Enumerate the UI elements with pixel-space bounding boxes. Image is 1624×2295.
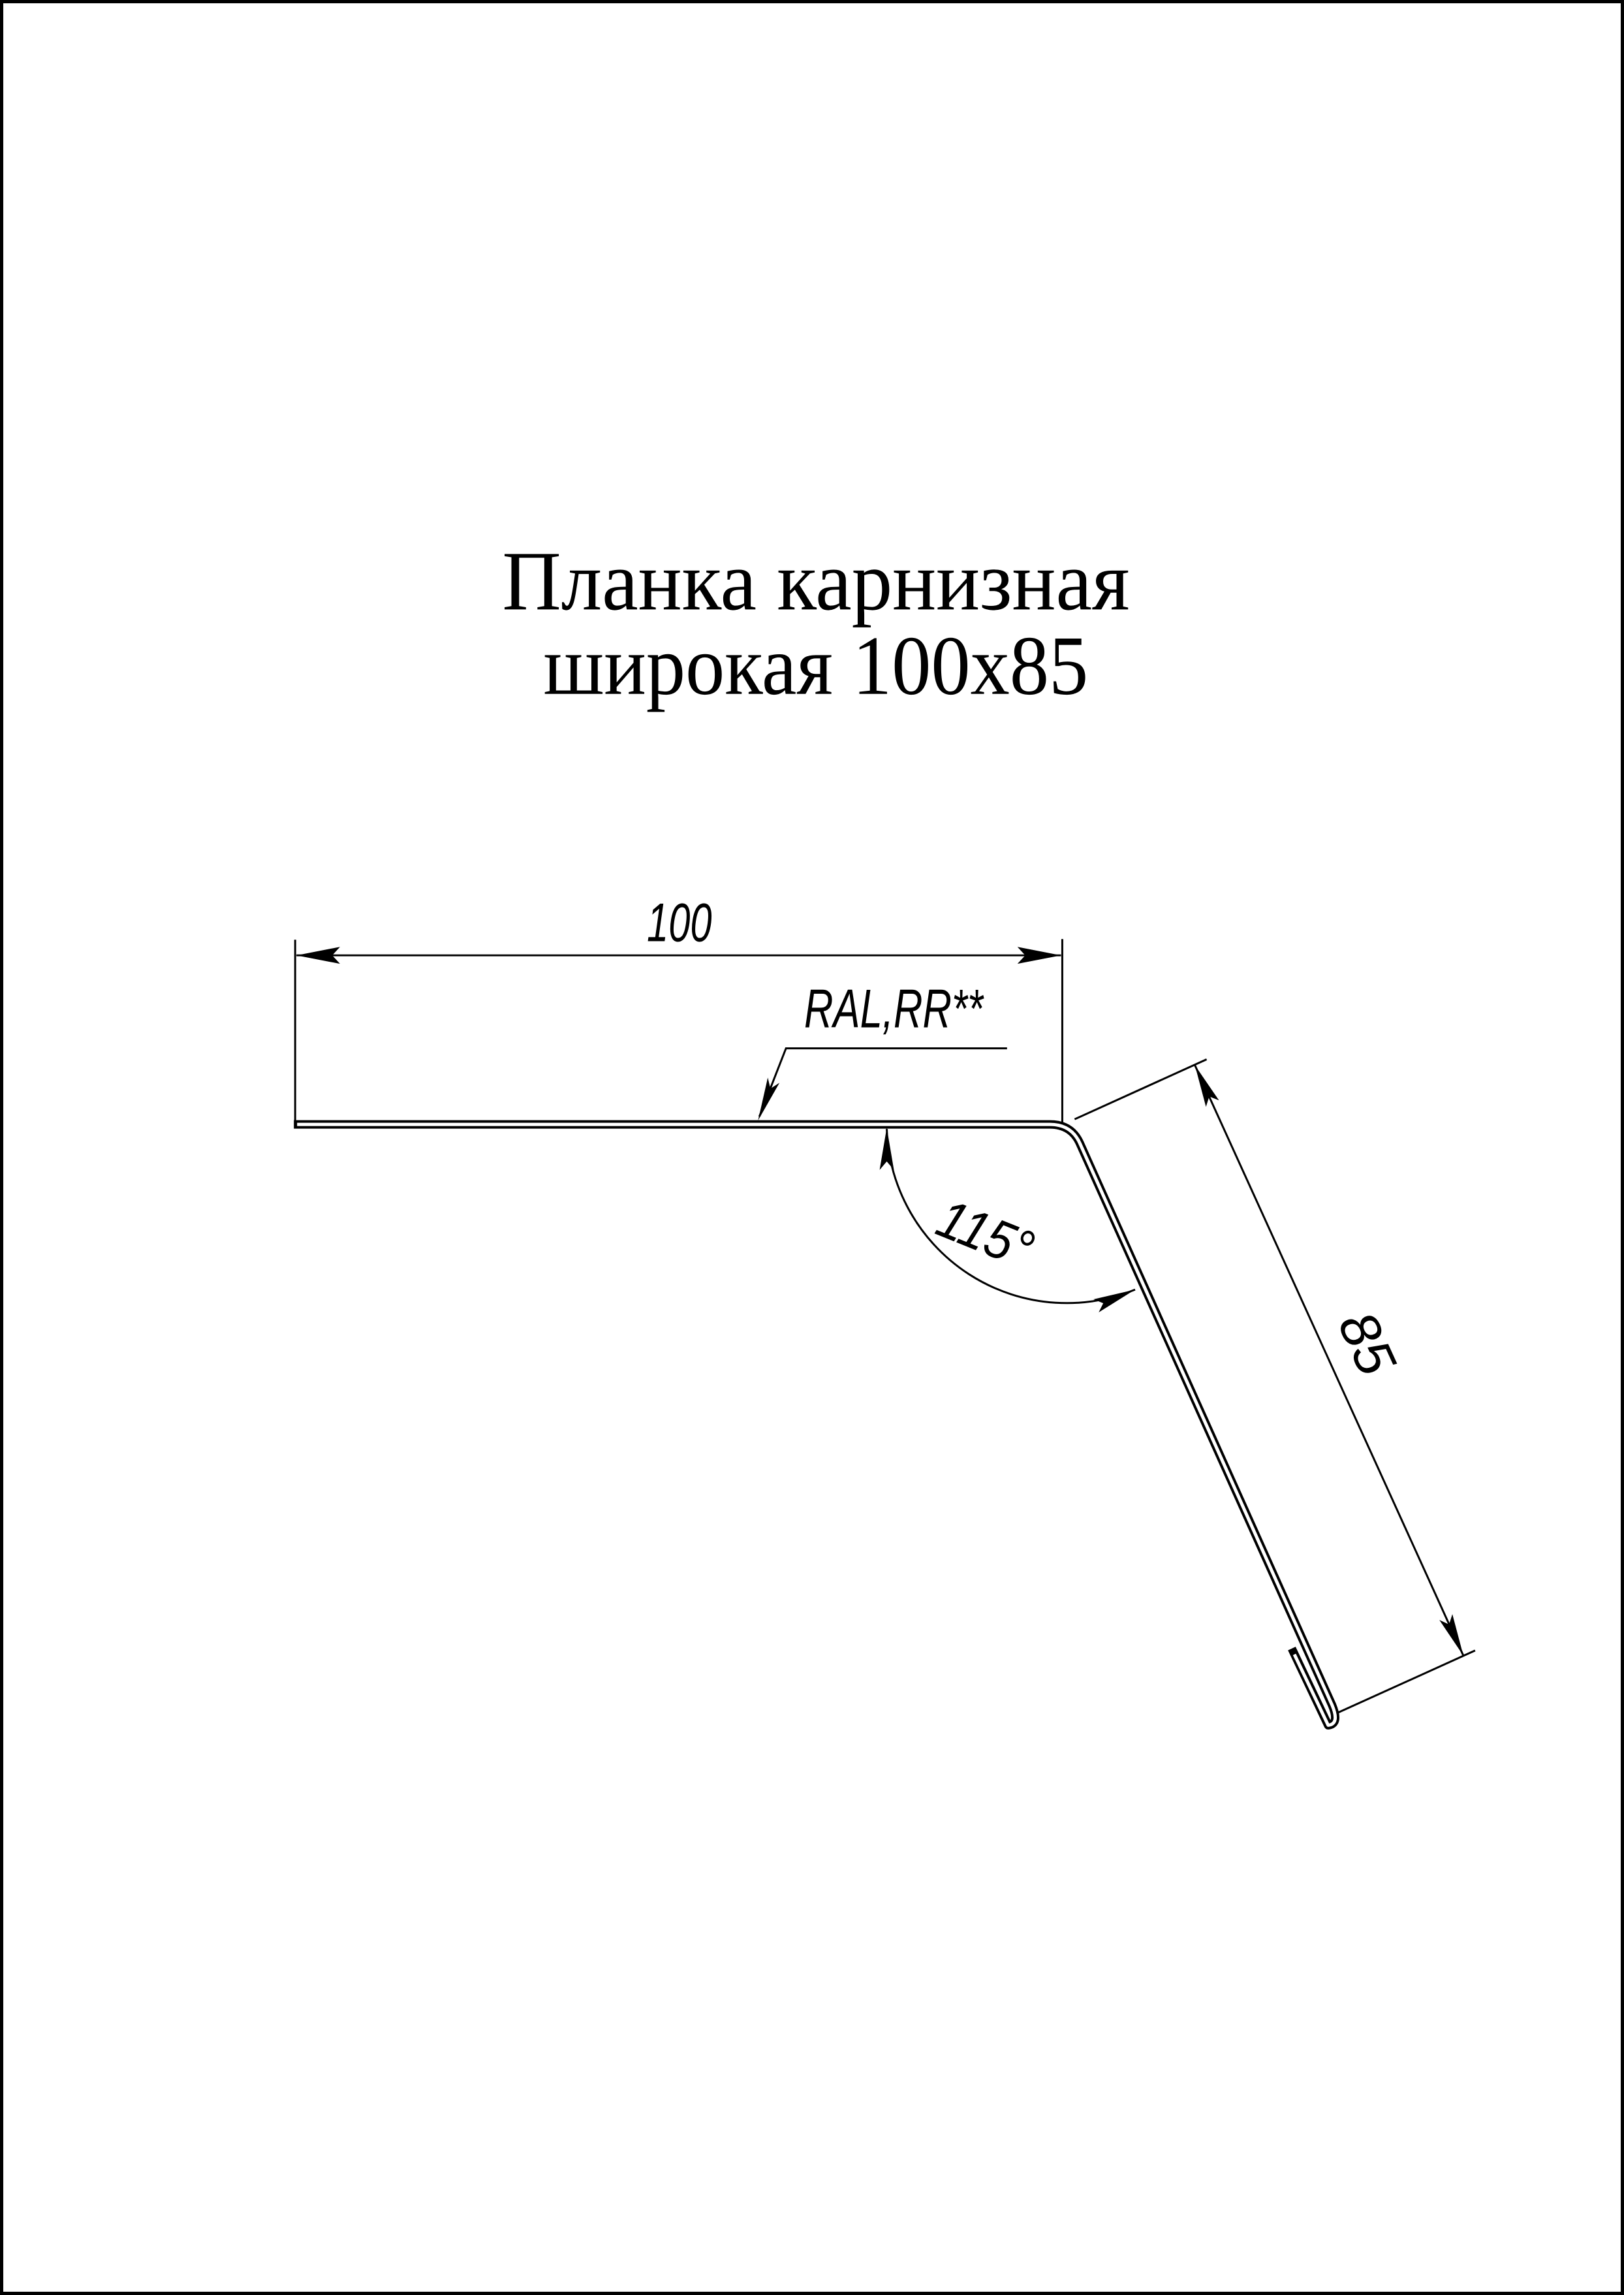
sheet-profile xyxy=(294,1124,1335,1725)
angle-arrow-top-icon xyxy=(880,1128,894,1170)
drawing-title-line2: широкая 100x85 xyxy=(544,620,1089,713)
angle-dimension: 115° xyxy=(880,1128,1135,1312)
technical-drawing-canvas: Планка карнизная широкая 100x85 100 RAL,… xyxy=(3,3,1621,2292)
coating-leader-line xyxy=(759,1049,1007,1117)
coating-callout: RAL,RR** xyxy=(758,978,1007,1120)
flange-extension-line-top xyxy=(1074,1060,1206,1120)
flange-arrow-top-icon xyxy=(1195,1066,1219,1107)
flange-arrow-bottom-icon xyxy=(1439,1614,1463,1656)
coating-label: RAL,RR** xyxy=(804,978,984,1039)
angle-dimension-label: 115° xyxy=(929,1187,1042,1280)
coating-leader-arrow-icon xyxy=(758,1077,779,1120)
width-dimension-label: 100 xyxy=(647,891,712,953)
drawing-title-line1: Планка карнизная xyxy=(502,535,1129,628)
sheet-profile-outline xyxy=(294,1124,1335,1725)
flange-dimension-line xyxy=(1195,1066,1463,1656)
flange-extension-line-bottom xyxy=(1337,1651,1475,1713)
drawing-page: Планка карнизная широкая 100x85 100 RAL,… xyxy=(0,0,1624,2295)
angle-arrow-bottom-icon xyxy=(1093,1290,1135,1312)
flange-dimension: 85 xyxy=(1074,1060,1475,1713)
flange-dimension-label: 85 xyxy=(1326,1303,1408,1385)
drawing-title: Планка карнизная широкая 100x85 xyxy=(502,535,1129,712)
sheet-profile-inner-face xyxy=(297,1124,1335,1725)
